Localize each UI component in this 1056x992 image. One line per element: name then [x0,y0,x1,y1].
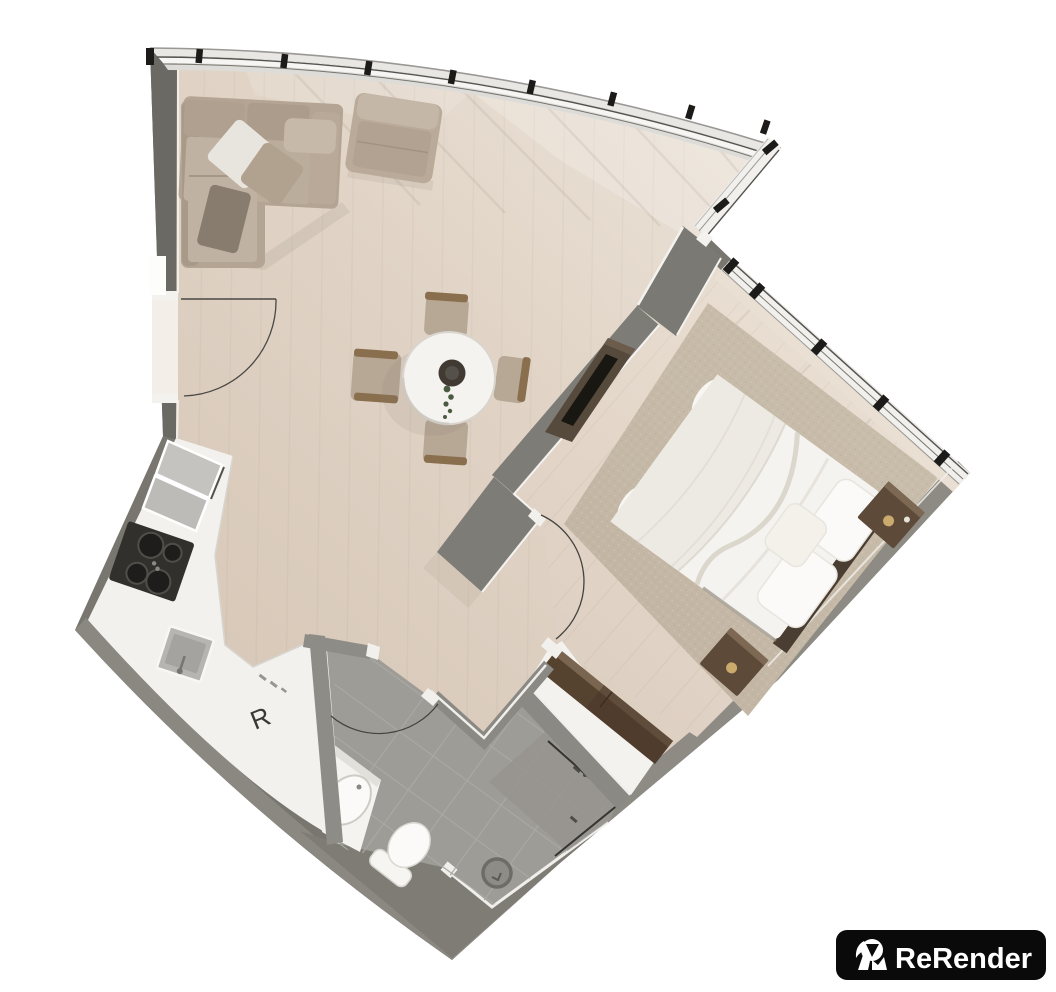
svg-text:ReRender: ReRender [895,943,1032,975]
